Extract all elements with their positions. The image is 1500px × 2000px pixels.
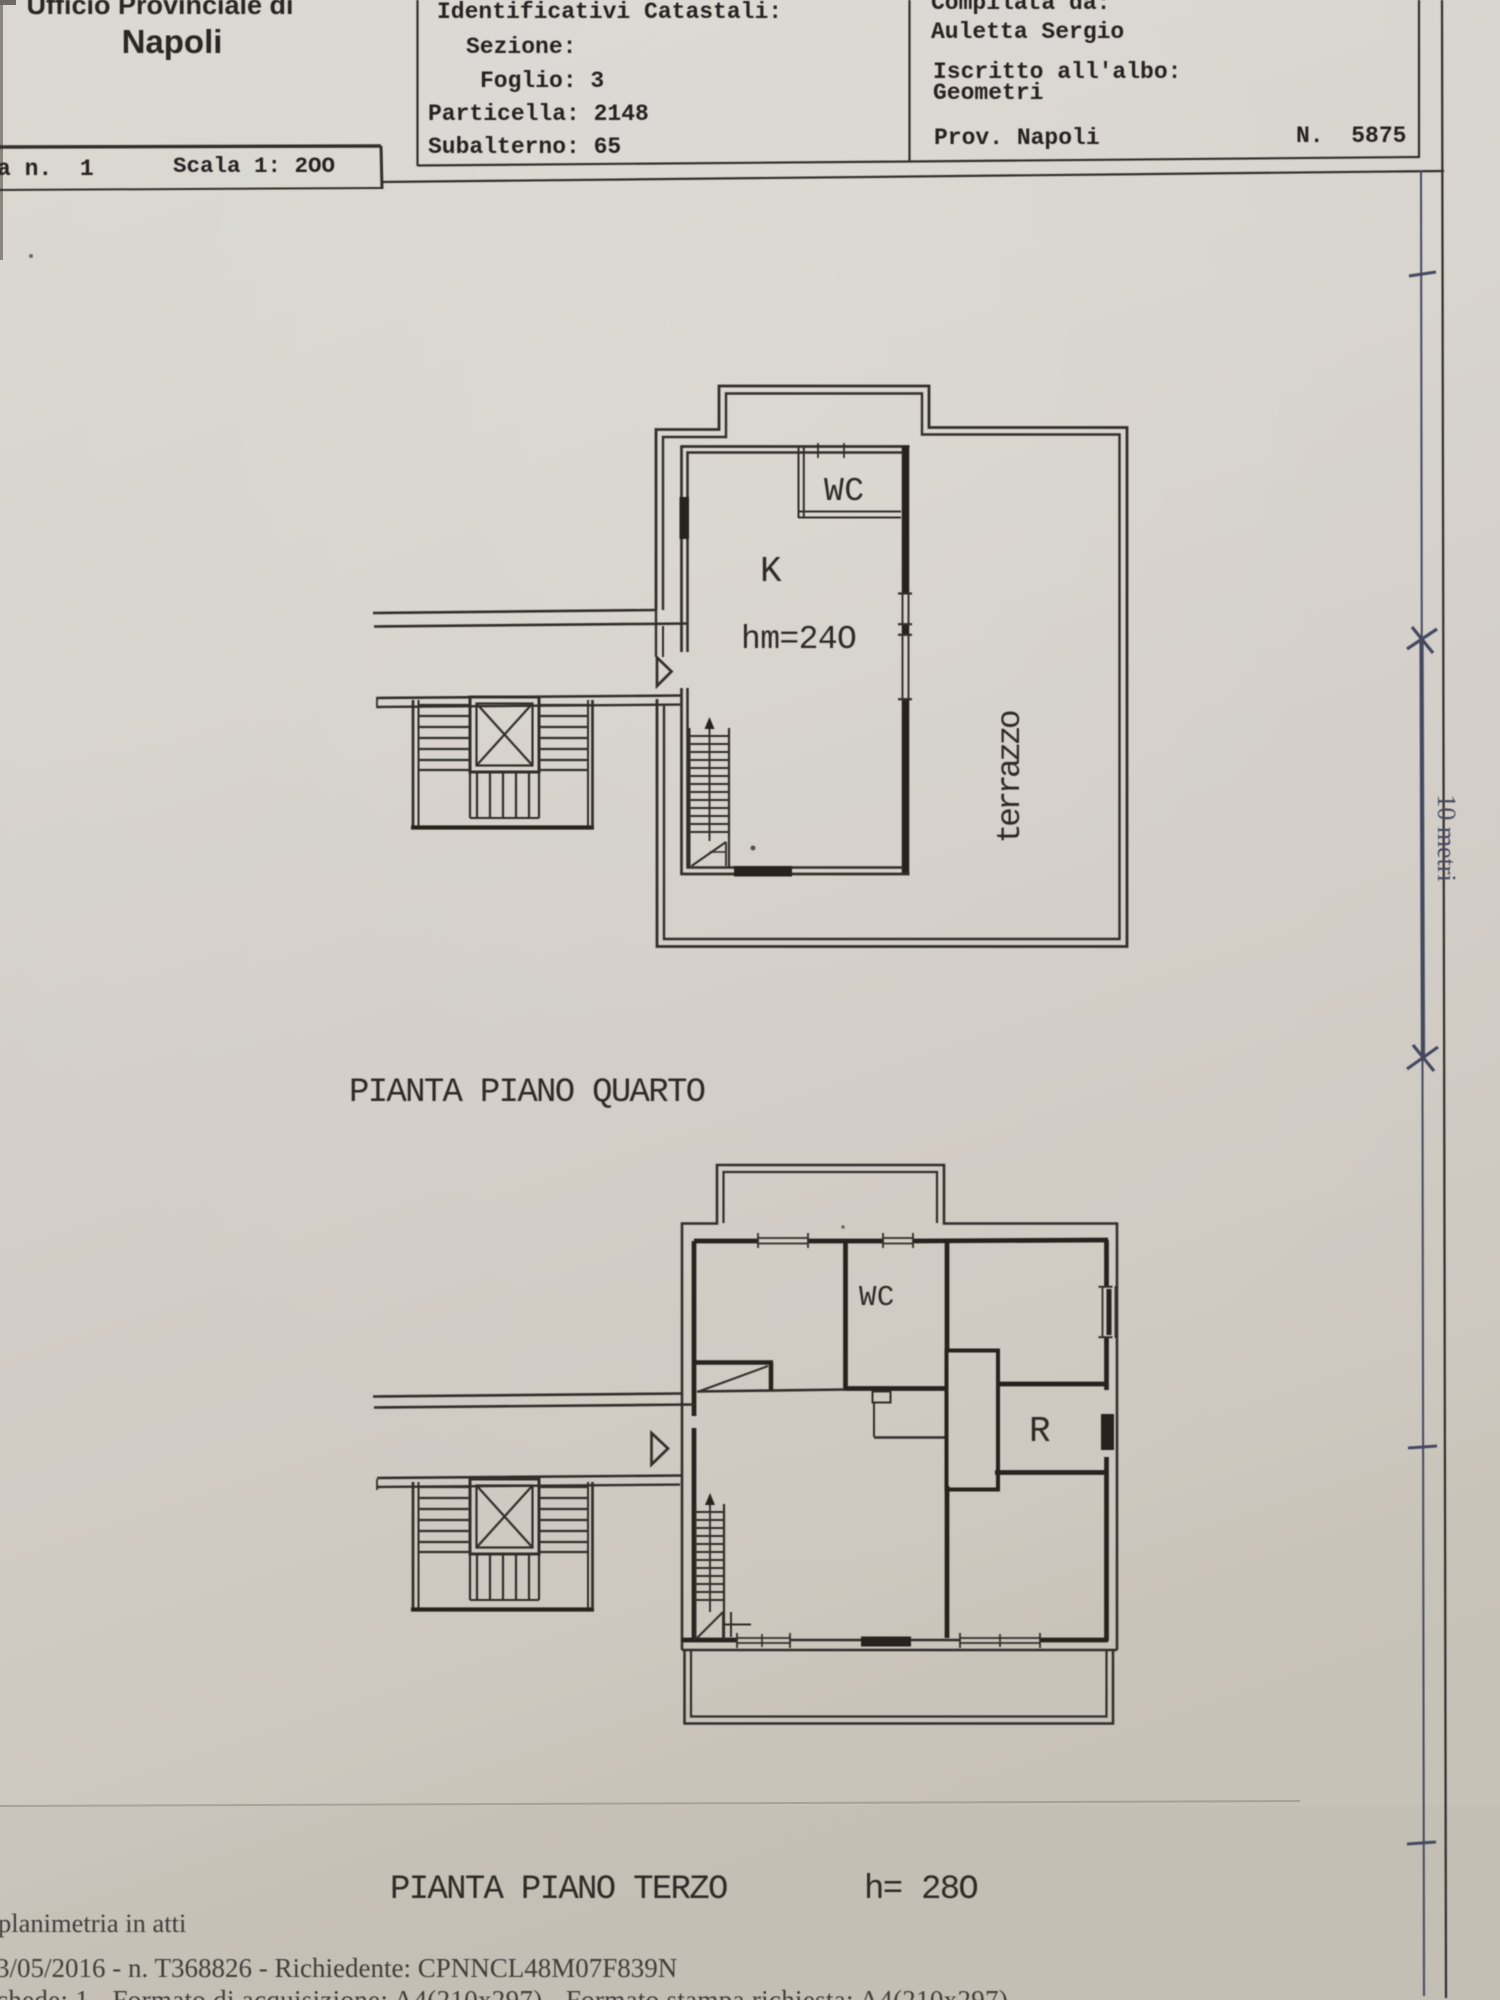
svg-text:R: R bbox=[1029, 1411, 1051, 1452]
svg-text:Geometri: Geometri bbox=[933, 80, 1043, 106]
svg-text:Subalterno: 65: Subalterno: 65 bbox=[428, 134, 621, 160]
svg-text:Auletta Sergio: Auletta Sergio bbox=[931, 19, 1124, 45]
svg-text:Sezione:: Sezione: bbox=[466, 34, 576, 60]
svg-text:PIANTA PIANO TERZO: PIANTA PIANO TERZO bbox=[390, 1871, 727, 1909]
svg-text:3/05/2016 - n. T368826 - Richi: 3/05/2016 - n. T368826 - Richiedente: CP… bbox=[0, 1953, 677, 1983]
svg-text:Napoli: Napoli bbox=[122, 23, 223, 60]
svg-text:a n. 1: a n. 1 bbox=[0, 156, 94, 182]
svg-text:WC: WC bbox=[859, 1281, 895, 1314]
svg-text:Particella: 2148: Particella: 2148 bbox=[428, 101, 649, 127]
svg-text:chede: 1 - Formato di acquisiz: chede: 1 - Formato di acquisizione: A4(2… bbox=[0, 1985, 1008, 2000]
svg-text:Scala 1: 2OO: Scala 1: 2OO bbox=[173, 153, 335, 179]
svg-text:N. 5875: N. 5875 bbox=[1296, 123, 1406, 149]
svg-text:28O: 28O bbox=[921, 1871, 977, 1909]
svg-text:hm=24O: hm=24O bbox=[741, 621, 856, 658]
svg-text:10 metri: 10 metri bbox=[1432, 794, 1461, 881]
svg-text:Foglio: 3: Foglio: 3 bbox=[480, 68, 604, 94]
svg-text:K: K bbox=[760, 551, 782, 592]
svg-text:Prov. Napoli: Prov. Napoli bbox=[934, 125, 1100, 151]
svg-text:Compilata da:: Compilata da: bbox=[931, 0, 1110, 16]
svg-text:planimetria in atti: planimetria in atti bbox=[0, 1908, 186, 1938]
svg-text:Ufficio Provinciale di: Ufficio Provinciale di bbox=[26, 0, 293, 20]
svg-text:h=: h= bbox=[864, 1871, 902, 1909]
svg-text:terrazzo: terrazzo bbox=[992, 711, 1029, 843]
svg-text:PIANTA PIANO QUARTO: PIANTA PIANO QUARTO bbox=[349, 1074, 705, 1112]
svg-text:Identificativi Catastali:: Identificativi Catastali: bbox=[437, 0, 782, 25]
svg-text:WC: WC bbox=[824, 473, 865, 510]
